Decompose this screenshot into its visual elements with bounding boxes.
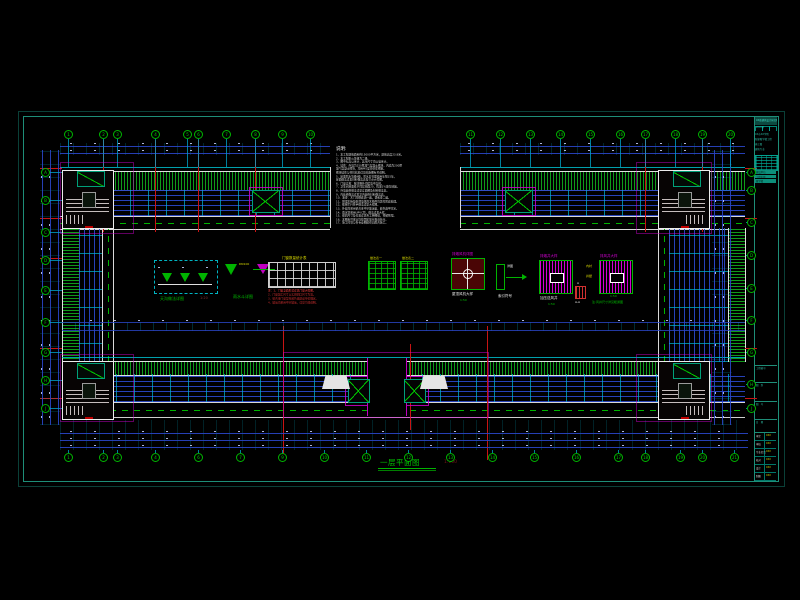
shaft-symbol [252, 190, 280, 213]
grid-bubble: 19 [698, 130, 707, 139]
grid-bubble: 11 [466, 130, 475, 139]
signature-value: XXX [766, 450, 771, 453]
grid-bubble: 20 [698, 453, 707, 462]
grid-bubble: 1 [64, 453, 73, 462]
grid-bubble: 20 [726, 130, 735, 139]
grid-bubble: 1 [64, 130, 73, 139]
wall-hatch-band [112, 171, 330, 191]
note-line: 11、预埋木砖及贴邻墙体的木构件均需作防腐处理。 [336, 200, 442, 202]
gutter-detail: 天沟做法详图 1:20 [154, 260, 218, 308]
note-line: 15、留洞尺寸及位置详见各工种图纸，预留预埋。 [336, 214, 442, 216]
grid-leader-line [590, 139, 591, 167]
firm-header: XX省建筑设计研究院 [755, 117, 777, 125]
notes-title: 说明: [336, 146, 347, 152]
grid-bubble: F [41, 318, 50, 327]
drawing-title: 一层平面图 [380, 457, 420, 468]
grid-bubble: 15 [530, 453, 539, 462]
grid-bubble: 4 [151, 453, 160, 462]
grid-bubble: 10 [320, 453, 329, 462]
grid-bubble: H [747, 380, 756, 389]
hatch-symbol [77, 171, 105, 187]
gutter-detail-label: 天沟做法详图 [160, 296, 184, 302]
grid-leader-line [50, 322, 62, 323]
project-name-block: XX市XX学院新建教学楼工程施工图建筑专业 [755, 132, 777, 154]
red-note-line: 注：1、门窗立面形式详见门窗大样图。 [268, 289, 333, 291]
grid-bubble: 3 [113, 453, 122, 462]
note-line: 17、施工时须与各专业图纸密切配合施工。 [336, 221, 442, 223]
signature-row: 设计XXX [755, 465, 776, 473]
highlight-row: 建设单位 [755, 170, 776, 174]
grid-bubble: 16 [616, 130, 625, 139]
note-line: 14、雨水管采用UPVC管，做法详见大样。 [336, 211, 442, 213]
note-line: 砌块墙体与柱拉结筋详见结施图有关说明。 [336, 171, 442, 173]
grid-leader-line [255, 139, 256, 167]
signature-label: 审核 [756, 442, 761, 446]
index-symbol-detail: 详图 索引符号 [496, 262, 530, 306]
grid-bubble: C [747, 218, 756, 227]
note-line: 13、外窗均采用铝合金中空玻璃窗，颜色由甲方定。 [336, 207, 442, 209]
exhaust-shaft-detail: 排风井大样 内衬 井壁 1:50 注:风井尺寸详见暖通图 [592, 254, 640, 310]
grid-leader-line [50, 260, 62, 261]
index-label: 索引符号 [498, 294, 512, 299]
signature-row: 审核XXX [755, 441, 776, 449]
grid-bubble: 9 [278, 130, 287, 139]
hatch-symbol [673, 363, 701, 379]
grid-leader-line [620, 139, 621, 167]
signature-label: 审定 [756, 434, 761, 438]
grid-bubble: 11 [362, 453, 371, 462]
drawing-title-block: 一层平面图 1:100 [380, 457, 490, 475]
fan-title: 排烟风机详图 [452, 252, 473, 257]
table-title: 门窗数量统计表 [282, 256, 307, 261]
cert-row: 证书甲级 [755, 126, 777, 131]
grid-bubble: 15 [586, 130, 595, 139]
grid-bubble: 12 [404, 453, 413, 462]
note-line: 10、油漆：木门均刷底油一遍，调和漆二遍。 [336, 196, 442, 198]
fan-label: 屋顶风机大样 [452, 292, 473, 297]
project-line: 新建教学楼工程 [755, 137, 764, 139]
note-line: 2、本工程耐火等级为二级。 [336, 157, 442, 159]
signature-table: 审定XXX审核XXX专业负责XXX校对XXX设计XXX制图XXX [755, 432, 776, 480]
grid-bubble: 2 [99, 453, 108, 462]
entry-steps [322, 376, 350, 389]
signature-value: XXX [766, 466, 771, 469]
project-line: XX市XX学院 [755, 132, 764, 134]
grid-bubble: 14 [556, 130, 565, 139]
signature-row: 审定XXX [755, 433, 776, 441]
red-note-line: 2、门窗加工尺寸以实测洞口尺寸为准。 [268, 293, 333, 295]
grid-bubble: H [41, 376, 50, 385]
grid-bubble: 6 [194, 453, 203, 462]
material-table-2: 做法表二 [400, 256, 428, 290]
grid-bubble: 12 [496, 130, 505, 139]
note-line: 16、本图未尽事宜均按国家现行规范执行。 [336, 218, 442, 220]
grid-bubble: B [747, 186, 756, 195]
grid-bubble: 17 [614, 453, 623, 462]
signature-value: XXX [766, 442, 771, 445]
grid-leader-line [50, 290, 62, 291]
note-line: 6、门窗立樘：除注明外均居墙中立樘。 [336, 182, 442, 184]
grid-leader-line [730, 139, 731, 167]
signature-label: 校对 [756, 458, 761, 462]
note-line: 加气混凝土砌块，均用M5混合砂浆砌筑。 [336, 167, 442, 169]
hopper-detail-label: 雨水斗详图 [233, 294, 253, 300]
project-line: 建筑专业 [755, 147, 764, 149]
signature-label: 制图 [756, 474, 761, 478]
grid-bubble: 21 [730, 453, 739, 462]
signature-value: XXX [766, 434, 771, 437]
window-schedule-table: 门窗数量统计表 注：1、门窗立面形式详见门窗大样图。2、门窗加工尺寸以实测洞口尺… [268, 256, 340, 308]
red-note-lines: 注：1、门窗立面形式详见门窗大样图。2、门窗加工尺寸以实测洞口尺寸为准。3、铝合… [268, 289, 413, 305]
grid-bubble: G [747, 348, 756, 357]
grid-bubble: 18 [641, 453, 650, 462]
hatch-symbol [77, 363, 105, 379]
grid-bubble: 10 [306, 130, 315, 139]
shaft-symbol [348, 379, 370, 403]
grid-bubble: E [747, 284, 756, 293]
highlight-row: 教学楼 [755, 179, 776, 183]
grid-bubble: E [41, 286, 50, 295]
grid-bubble: B [41, 196, 50, 205]
signature-row: 制图XXX [755, 473, 776, 481]
grid-leader-line [187, 139, 188, 167]
note-line: 9、内装修做法详见室内装修材料做法表。 [336, 193, 442, 195]
grid-bubble: 8 [251, 130, 260, 139]
grid-leader-line [198, 139, 199, 167]
project-line: 施工图 [755, 142, 764, 144]
note-line: 4、墙体：外墙为250厚加气混凝土砌块，内墙为200厚 [336, 164, 442, 166]
roof-fan-detail: 排烟风机详图 屋顶风机大样 1:50 [450, 252, 486, 308]
grid-bubble: 14 [488, 453, 497, 462]
grid-bubble: 17 [641, 130, 650, 139]
note-line: 12、楼梯栏杆扶手做法详见大样图。 [336, 203, 442, 205]
grid-leader-line [282, 139, 283, 167]
highlight-row: 工程名称 [755, 175, 776, 179]
grid-bubble: 5 [183, 130, 192, 139]
grid-bubble: D [747, 251, 756, 260]
grid-bubble: 9 [278, 453, 287, 462]
grid-bubble: 3 [113, 130, 122, 139]
grid-bubble: J [747, 404, 756, 413]
hatch-symbol [673, 171, 701, 187]
grid-bubble: J [41, 404, 50, 413]
section-label: 图 号 [756, 402, 777, 407]
red-note-line: 3、铝合金门窗型材颜色由建设单位确定。 [268, 297, 333, 299]
section-label: 日 期 [756, 420, 777, 425]
grid-bubble: 16 [572, 453, 581, 462]
grid-leader-line [50, 352, 62, 353]
signature-row: 专业负责XXX [755, 449, 776, 457]
grid-leader-line [310, 139, 311, 167]
grid-bubble: 18 [671, 130, 680, 139]
grid-bubble: G [41, 348, 50, 357]
grid-bubble: 7 [236, 453, 245, 462]
grid-bubble: A [747, 168, 756, 177]
signature-row: 校对XXX [755, 457, 776, 465]
signature-label: 设计 [756, 466, 761, 470]
highlight-rows: 建设单位工程名称教学楼 [755, 170, 777, 184]
signature-value: XXX [766, 458, 771, 461]
note-line: 8、外墙装修做法详见立面图及材料做法表。 [336, 189, 442, 191]
note-line: 5、屋面防水等级Ⅱ级，防水层合理使用年限15年， [336, 175, 442, 177]
grid-bubble: C [41, 228, 50, 237]
shaft-symbol [505, 190, 533, 213]
note-line: 7、卫生间地面低于同层地面20，找坡1%坡向地漏。 [336, 185, 442, 187]
entry-steps [420, 376, 448, 389]
section-label: 图 别 [756, 383, 777, 388]
grid-leader-line [155, 139, 156, 167]
grid-bubble: 13 [526, 130, 535, 139]
note-line: 1、本工程建筑面积约15000平方米，建筑高度23.8米。 [336, 153, 442, 155]
material-table-1: 做法表一 [368, 256, 396, 290]
red-note-line: 4、玻璃均采用中空玻璃，详见节能说明。 [268, 301, 333, 303]
grid-bubble: D [41, 256, 50, 265]
cad-drawing-canvas: 1234567891011121314151617181920123467910… [0, 0, 800, 600]
section-mark: A A-A [574, 281, 588, 307]
note-line: 3、图中标高以米计，其余尺寸均以毫米计。 [336, 160, 442, 162]
general-notes: 说明: 1、本工程建筑面积约15000平方米，建筑高度23.8米。2、本工程耐火… [336, 146, 442, 238]
grid-bubble: A [41, 168, 50, 177]
signature-value: XXX [766, 474, 771, 477]
grid-leader-line [226, 139, 227, 167]
grid-bubble: 13 [446, 453, 455, 462]
grid-bubble: 6 [194, 130, 203, 139]
note-line: 屋面做法详见材料做法表及节点大样图。 [336, 178, 442, 180]
grid-bubble: 2 [99, 130, 108, 139]
revision-table [755, 155, 778, 171]
grid-bubble: 4 [151, 130, 160, 139]
section-label: 工程编号 [756, 366, 777, 371]
grid-bubble: F [747, 316, 756, 325]
grid-bubble: 7 [222, 130, 231, 139]
smoke-shaft-detail: 排烟井大样 加压送风井 1:50 [538, 254, 574, 310]
grid-bubble: 19 [676, 453, 685, 462]
